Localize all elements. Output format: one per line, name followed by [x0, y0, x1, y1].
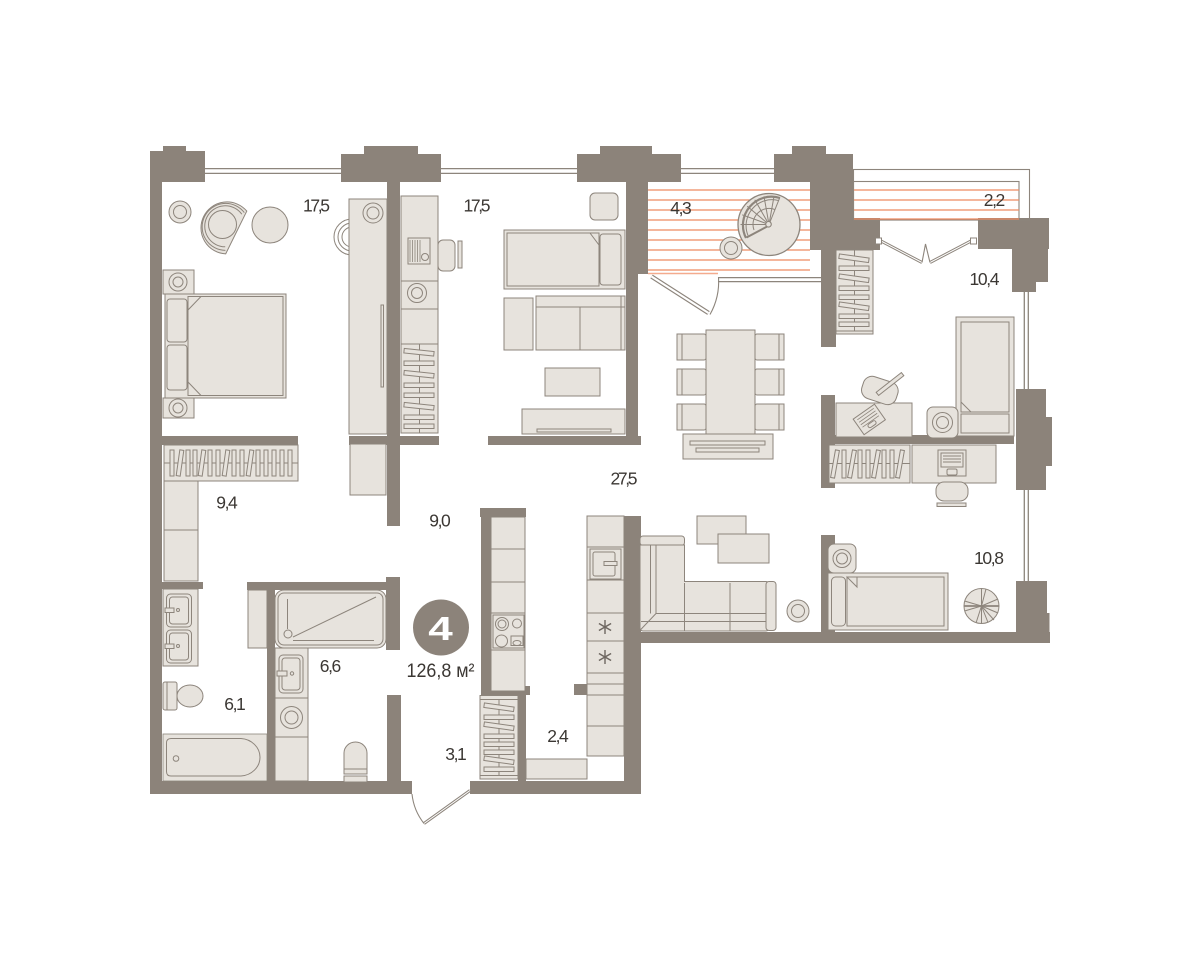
svg-text:10,8: 10,8 — [974, 548, 1004, 568]
svg-text:9,4: 9,4 — [216, 493, 238, 513]
svg-text:126,8 м²: 126,8 м² — [407, 660, 475, 682]
svg-text:27,5: 27,5 — [611, 469, 638, 489]
svg-text:4: 4 — [428, 610, 453, 647]
svg-text:6,6: 6,6 — [320, 656, 342, 676]
svg-text:10,4: 10,4 — [970, 269, 1000, 289]
svg-text:2,2: 2,2 — [984, 190, 1006, 210]
svg-text:9,0: 9,0 — [429, 511, 451, 531]
svg-text:3,1: 3,1 — [445, 744, 467, 764]
svg-text:17,5: 17,5 — [303, 196, 330, 216]
svg-text:2,4: 2,4 — [547, 726, 569, 746]
svg-text:4,3: 4,3 — [670, 198, 692, 218]
svg-text:17,5: 17,5 — [464, 196, 491, 216]
svg-text:6,1: 6,1 — [224, 694, 246, 714]
